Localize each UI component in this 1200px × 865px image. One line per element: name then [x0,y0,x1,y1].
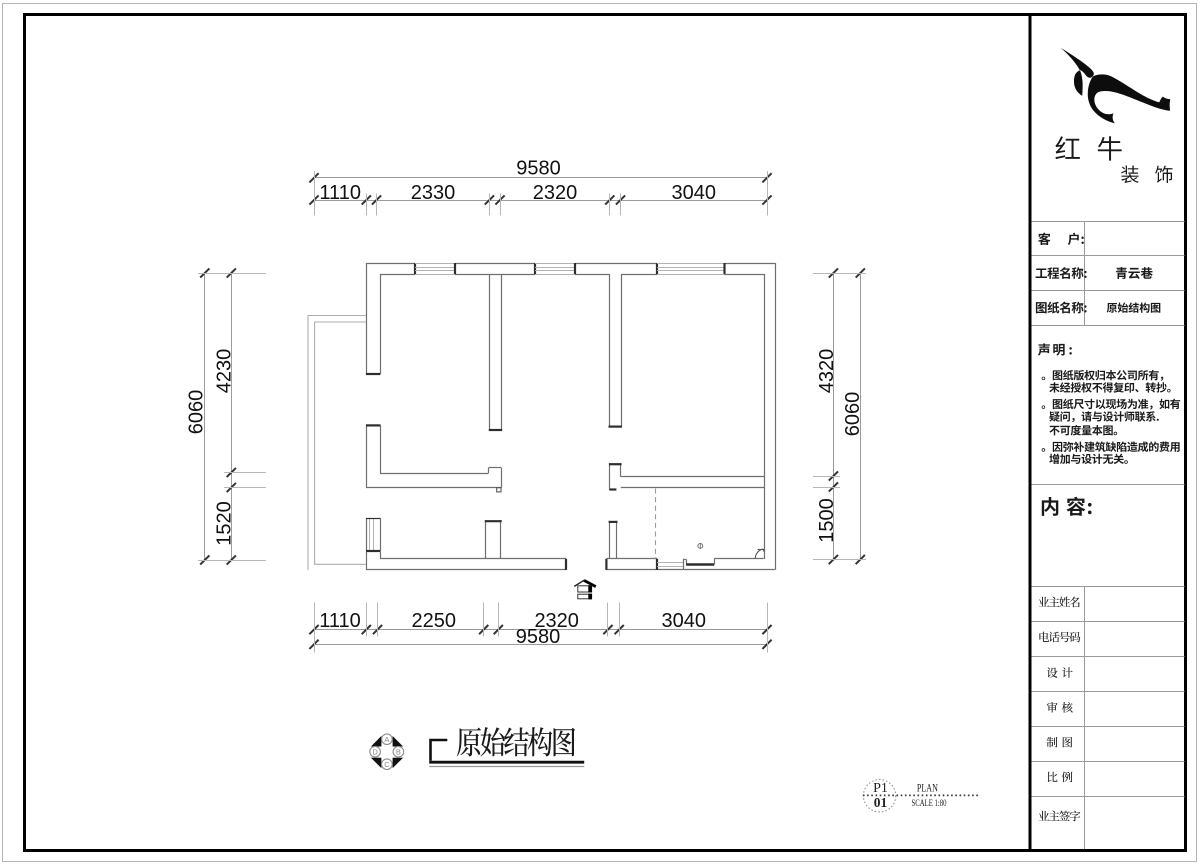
svg-text:9580: 9580 [516,626,561,648]
svg-text:A: A [384,735,389,744]
svg-text:3040: 3040 [662,610,707,632]
svg-text:1110: 1110 [319,610,361,632]
svg-text:C: C [384,760,390,769]
svg-text:6060: 6060 [842,392,864,437]
svg-text:D: D [372,748,378,757]
svg-text:1520: 1520 [213,501,235,546]
svg-text:SCALE 1:80: SCALE 1:80 [912,798,947,808]
svg-text:2250: 2250 [412,610,457,632]
svg-text:P1: P1 [873,781,888,796]
svg-text:9580: 9580 [516,157,561,179]
svg-text:2330: 2330 [411,182,456,204]
svg-text:2320: 2320 [533,182,578,204]
svg-text:PLAN: PLAN [917,780,938,794]
svg-text:3040: 3040 [672,182,717,204]
svg-text:1500: 1500 [816,498,838,543]
svg-text:6060: 6060 [186,390,208,435]
svg-text:4230: 4230 [213,349,235,394]
svg-text:4320: 4320 [816,349,838,394]
svg-text:01: 01 [874,795,888,810]
svg-text:1110: 1110 [319,182,361,204]
svg-text:B: B [396,748,401,757]
